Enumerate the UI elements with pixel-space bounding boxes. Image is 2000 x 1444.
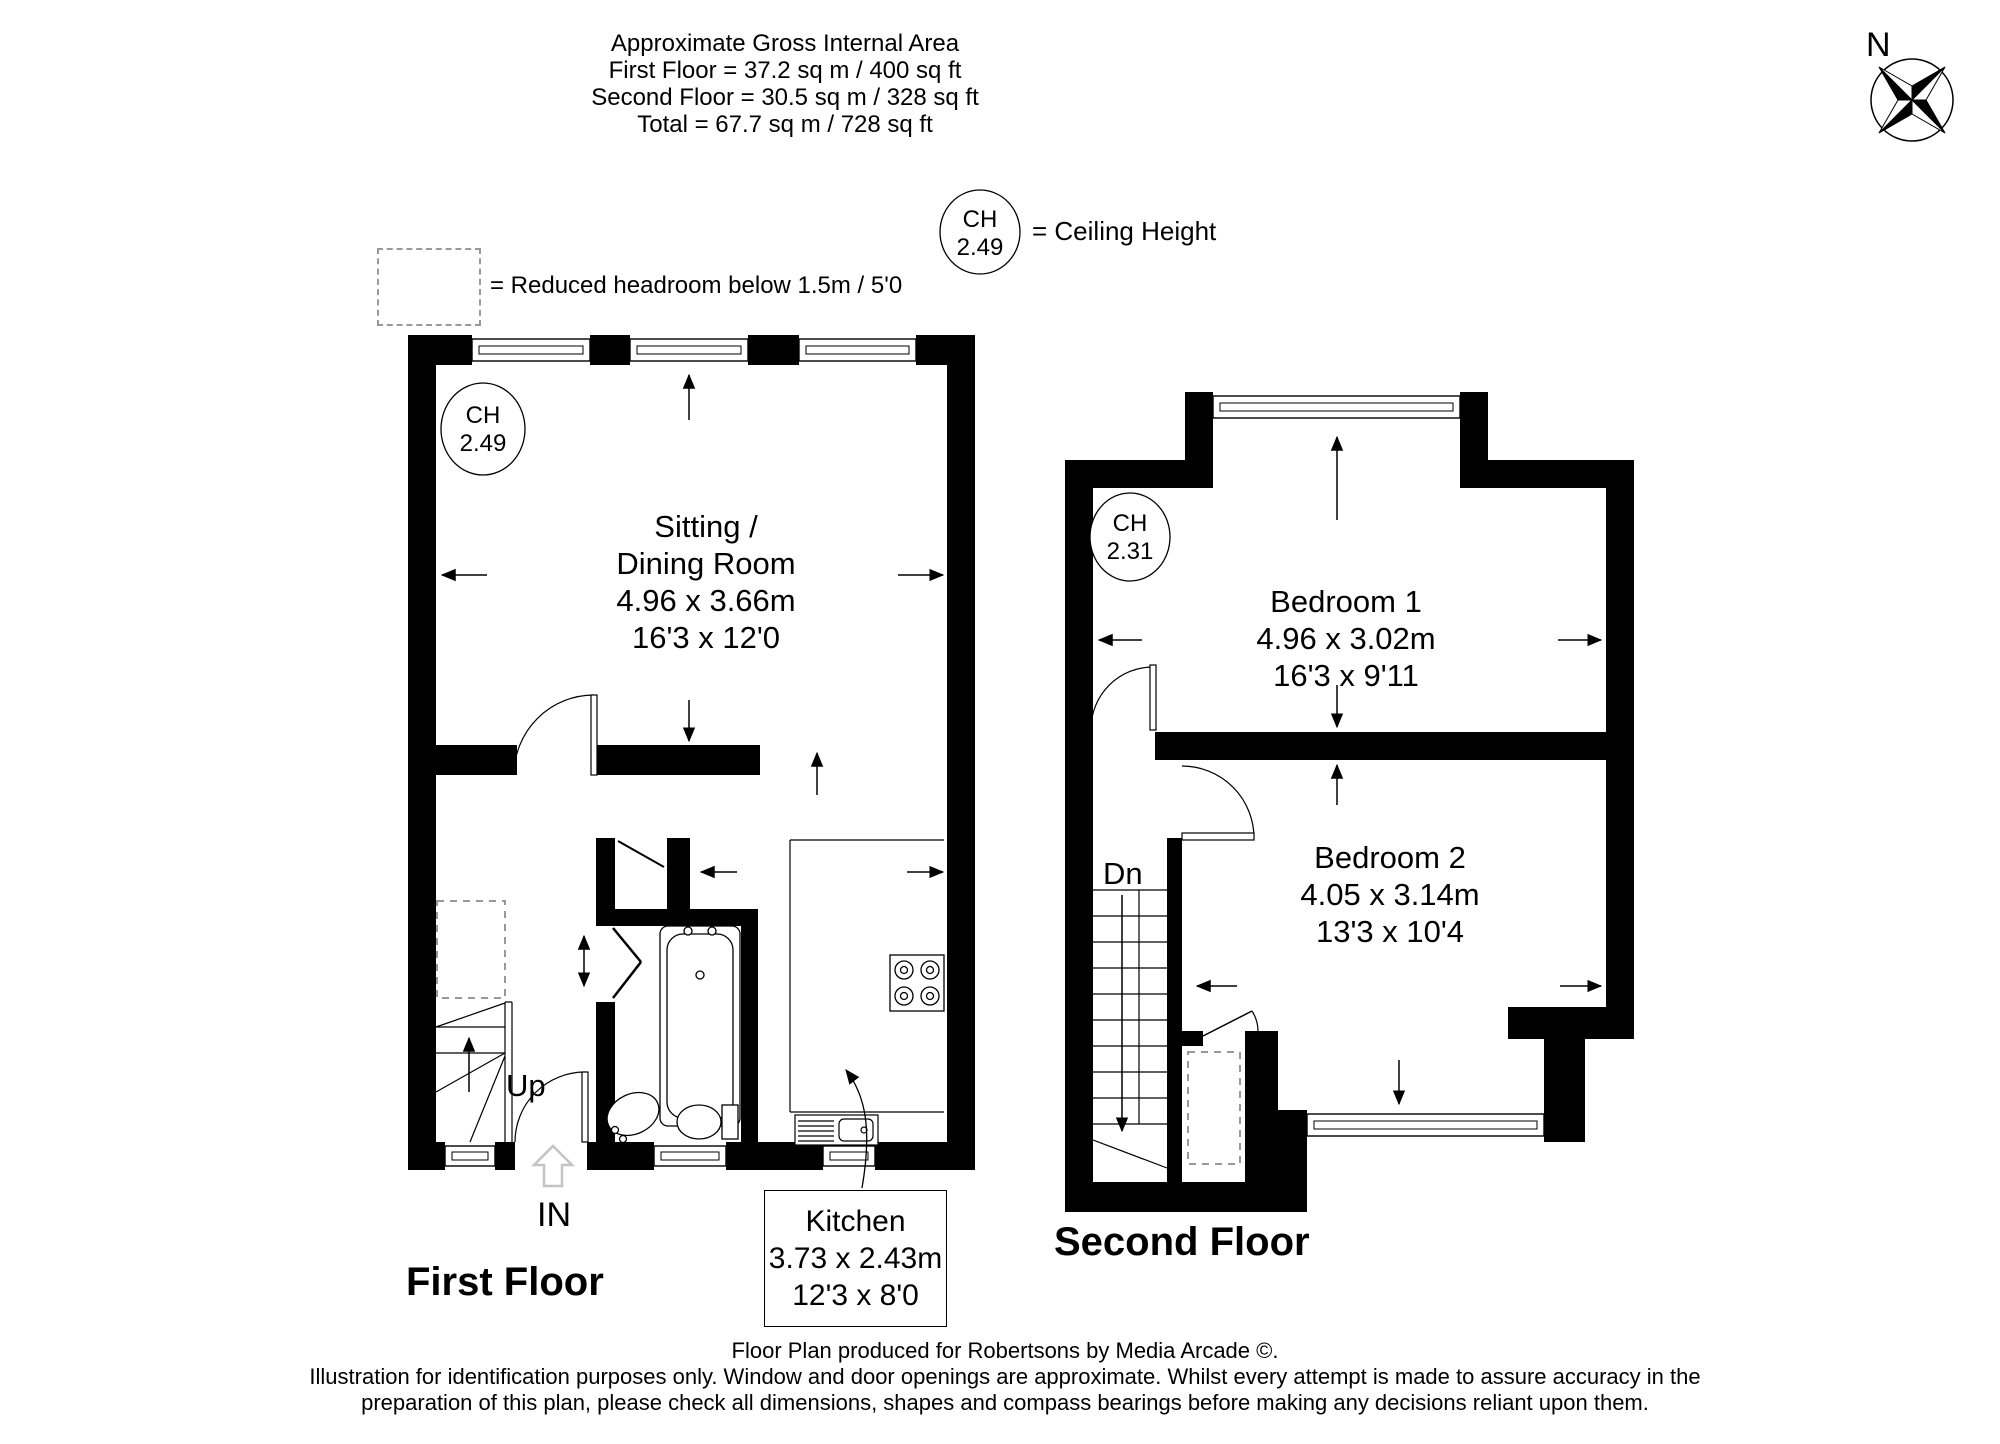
header-first-floor-area: First Floor = 37.2 sq m / 400 sq ft [535, 57, 1035, 84]
room-name: Kitchen [765, 1203, 946, 1240]
room-dims-metric: 4.05 x 3.14m [1240, 876, 1540, 913]
footer-credit: Floor Plan produced for Robertsons by Me… [255, 1338, 1755, 1364]
ch-abbr: CH [940, 206, 1020, 234]
room-dims-imperial: 16'3 x 12'0 [556, 619, 856, 656]
first-floor-title: First Floor [406, 1260, 604, 1305]
stairs-down-label: Dn [1103, 856, 1143, 892]
reduced-headroom-area [437, 901, 505, 998]
room-name: Bedroom 2 [1240, 839, 1540, 876]
footer-disclaimer: Floor Plan produced for Robertsons by Me… [255, 1338, 1755, 1416]
ch-abbr: CH [1090, 510, 1170, 538]
footer-disclaimer-line: Illustration for identification purposes… [255, 1364, 1755, 1390]
room-dims-metric: 4.96 x 3.02m [1196, 620, 1496, 657]
room-name: Dining Room [556, 545, 856, 582]
ch-value: 2.49 [940, 234, 1020, 262]
reduced-headroom-legend-swatch [377, 248, 481, 326]
hob-icon [890, 955, 944, 1011]
window-icon [1213, 396, 1544, 1136]
room-dims-imperial: 16'3 x 9'11 [1196, 657, 1496, 694]
header-title: Approximate Gross Internal Area [535, 30, 1035, 57]
second-floor-ch-badge: CH 2.31 [1090, 510, 1170, 566]
reduced-headroom-legend-label: = Reduced headroom below 1.5m / 5'0 [490, 272, 902, 300]
ch-value: 2.31 [1090, 538, 1170, 566]
first-floor-ch-badge: CH 2.49 [441, 402, 525, 458]
compass-north-label: N [1866, 26, 1891, 65]
bathtub-icon [660, 926, 740, 1126]
footer-disclaimer-line: preparation of this plan, please check a… [255, 1390, 1755, 1416]
bedroom2-label: Bedroom 2 4.05 x 3.14m 13'3 x 10'4 [1240, 839, 1540, 950]
sitting-dining-room-label: Sitting / Dining Room 4.96 x 3.66m 16'3 … [556, 508, 856, 656]
ceiling-height-legend-badge: CH 2.49 [940, 206, 1020, 262]
header-total-area: Total = 67.7 sq m / 728 sq ft [535, 111, 1035, 138]
floor-plan-page: Approximate Gross Internal Area First Fl… [0, 0, 2000, 1444]
room-dims-metric: 3.73 x 2.43m [765, 1240, 946, 1277]
room-dims-imperial: 12'3 x 8'0 [765, 1277, 946, 1314]
compass-icon [1871, 59, 1953, 141]
kitchen-label-box: Kitchen 3.73 x 2.43m 12'3 x 8'0 [764, 1190, 947, 1327]
room-name: Sitting / [556, 508, 856, 545]
entrance-arrow-icon [534, 1146, 572, 1186]
ch-abbr: CH [441, 402, 525, 430]
stairs-down-icon [1093, 890, 1167, 1168]
stairs-up-icon [436, 1002, 512, 1142]
ch-value: 2.49 [441, 430, 525, 458]
room-dims-imperial: 13'3 x 10'4 [1240, 913, 1540, 950]
first-floor-plan [408, 335, 975, 1188]
stairs-up-label: Up [506, 1068, 546, 1104]
entrance-in-label: IN [524, 1196, 584, 1235]
gross-internal-area-header: Approximate Gross Internal Area First Fl… [535, 30, 1035, 138]
second-floor-title: Second Floor [1054, 1220, 1310, 1265]
reduced-headroom-area [1188, 1052, 1240, 1164]
room-name: Bedroom 1 [1196, 583, 1496, 620]
dimension-arrows [442, 375, 943, 986]
bedroom1-label: Bedroom 1 4.96 x 3.02m 16'3 x 9'11 [1196, 583, 1496, 694]
toilet-icon [677, 1105, 738, 1139]
header-second-floor-area: Second Floor = 30.5 sq m / 328 sq ft [535, 84, 1035, 111]
room-dims-metric: 4.96 x 3.66m [556, 582, 856, 619]
ceiling-height-legend-label: = Ceiling Height [1032, 216, 1216, 247]
